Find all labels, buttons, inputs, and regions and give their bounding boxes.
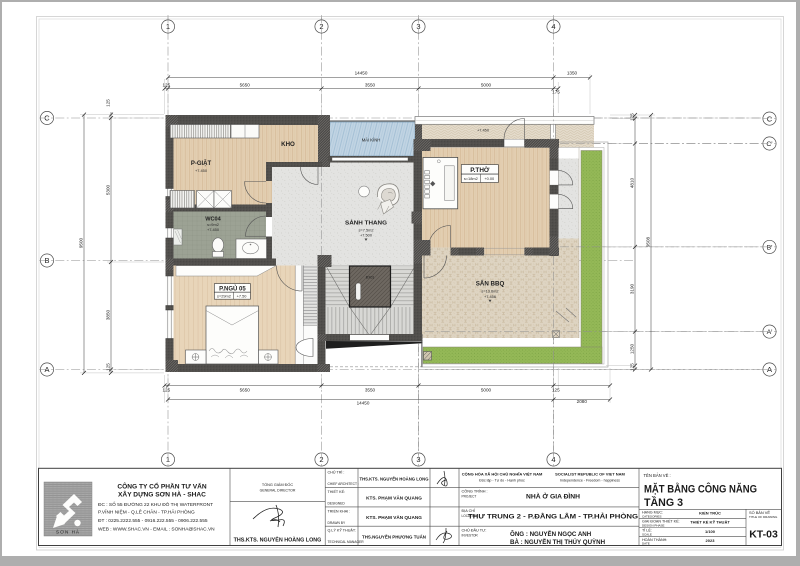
svg-text:TECHNICAL MANAGER: TECHNICAL MANAGER xyxy=(328,540,365,544)
svg-text:CHỦ TRÌ :: CHỦ TRÌ : xyxy=(328,470,345,475)
svg-text:3550: 3550 xyxy=(365,83,376,88)
svg-text:5000: 5000 xyxy=(481,388,492,393)
svg-text:2080: 2080 xyxy=(577,399,588,404)
svg-text:14450: 14450 xyxy=(355,71,368,76)
svg-text:DESIGN PHASE: DESIGN PHASE xyxy=(642,524,665,528)
svg-text:125: 125 xyxy=(106,363,111,371)
svg-text:DATE: DATE xyxy=(642,542,650,546)
svg-text:KTS. PHẠM VĂN QUANG: KTS. PHẠM VĂN QUANG xyxy=(366,495,422,501)
svg-text:+0.00: +0.00 xyxy=(484,176,495,181)
svg-text:DESIGNED: DESIGNED xyxy=(328,502,346,506)
svg-text:THƯ TRUNG 2 - P.ĐẰNG LÂM - TP.: THƯ TRUNG 2 - P.ĐẰNG LÂM - TP.HẢI PHÒNG xyxy=(468,512,638,521)
svg-text:5650: 5650 xyxy=(240,388,251,393)
svg-text:DRAWN BY: DRAWN BY xyxy=(328,521,346,525)
svg-text:A': A' xyxy=(767,329,773,336)
svg-text:THIẾT KẾ KỸ THUẬT: THIẾT KẾ KỸ THUẬT xyxy=(690,520,730,525)
svg-text:3190: 3190 xyxy=(630,283,635,294)
svg-text:1250: 1250 xyxy=(630,343,635,354)
svg-text:ĐC : SỐ 55 ĐƯỜNG 22 KHU ĐÔ THỊ: ĐC : SỐ 55 ĐƯỜNG 22 KHU ĐÔ THỊ WATERFRON… xyxy=(98,501,213,508)
svg-text:s=13.6m2: s=13.6m2 xyxy=(481,289,498,294)
svg-text:9508: 9508 xyxy=(646,236,651,247)
svg-text:SẢNH THANG: SẢNH THANG xyxy=(345,220,387,227)
svg-text:TÊN BẢN VẼ :: TÊN BẢN VẼ : xyxy=(644,473,671,478)
svg-text:SƠN HÀ: SƠN HÀ xyxy=(56,529,80,535)
svg-text:+7.456: +7.456 xyxy=(484,294,496,299)
svg-text:THS.NGUYỄN PHƯƠNG TUẤN: THS.NGUYỄN PHƯƠNG TUẤN xyxy=(362,533,427,539)
svg-text:14450: 14450 xyxy=(357,401,370,406)
svg-text:KT-03: KT-03 xyxy=(749,529,778,541)
svg-text:Q.LÝ KỸ THUẬT:: Q.LÝ KỸ THUẬT: xyxy=(328,528,356,533)
svg-text:XÂY DỰNG SƠN HÀ - SHAC: XÂY DỰNG SƠN HÀ - SHAC xyxy=(118,490,206,499)
svg-text:5650: 5650 xyxy=(240,83,251,88)
svg-text:175: 175 xyxy=(552,90,560,95)
svg-text:KTS. PHẠM VĂN QUANG: KTS. PHẠM VĂN QUANG xyxy=(366,514,422,520)
svg-text:C': C' xyxy=(766,141,772,148)
svg-text:B': B' xyxy=(767,244,773,251)
svg-text:CÔNG TRÌNH :: CÔNG TRÌNH : xyxy=(462,489,488,494)
svg-text:s=29m2: s=29m2 xyxy=(217,293,231,298)
svg-text:SÂN BBQ: SÂN BBQ xyxy=(476,281,505,288)
svg-text:ĐỊA CHỈ: ĐỊA CHỈ xyxy=(462,508,476,513)
svg-text:CỘNG HÒA XÃ HỘI CHỦ NGHĨA VIỆT: CỘNG HÒA XÃ HỘI CHỦ NGHĨA VIỆT NAM xyxy=(462,472,543,477)
svg-text:CATEGORIES: CATEGORIES xyxy=(642,514,661,518)
svg-text:CHIEF ARCHITECT :: CHIEF ARCHITECT : xyxy=(328,482,359,486)
svg-text:+7.450: +7.450 xyxy=(477,128,490,133)
svg-text:s=18m2: s=18m2 xyxy=(464,176,478,181)
svg-text:Độc lập - Tự do - Hạnh phúc: Độc lập - Tự do - Hạnh phúc xyxy=(479,479,525,483)
svg-text:THIẾT KẾ:: THIẾT KẾ: xyxy=(328,489,346,494)
svg-text:+7.50: +7.50 xyxy=(237,293,248,298)
svg-text:9500: 9500 xyxy=(79,237,84,248)
svg-text:1/100: 1/100 xyxy=(705,529,716,534)
svg-text:2023: 2023 xyxy=(706,538,716,543)
svg-text:Independence - Freedom - happi: Independence - Freedom - happiness xyxy=(560,479,620,483)
svg-text:BÀ : NGUYỄN THỊ THÚY QUỲ: BÀ : NGUYỄN THỊ THÚY QUỲNH xyxy=(510,539,606,546)
svg-text:INVESTOR: INVESTOR xyxy=(462,534,479,538)
svg-text:+7.500: +7.500 xyxy=(360,233,373,238)
svg-text:THS.KTS. NGUYỄN HOÀNG LONG: THS.KTS. NGUYỄN HOÀNG LONG xyxy=(360,476,429,482)
svg-text:PROJECT: PROJECT xyxy=(462,495,477,499)
svg-text:TITLE OF DRAWING: TITLE OF DRAWING xyxy=(749,515,778,519)
svg-text:KIẾN TRÚC: KIẾN TRÚC xyxy=(699,511,721,516)
svg-text:+7.450: +7.450 xyxy=(207,227,220,232)
svg-text:KHO: KHO xyxy=(281,141,295,148)
svg-text:4810: 4810 xyxy=(630,177,635,188)
svg-text:125: 125 xyxy=(162,388,170,393)
svg-text:P.NGỦ 05: P.NGỦ 05 xyxy=(219,285,246,292)
svg-text:5000: 5000 xyxy=(481,83,492,88)
svg-text:3550: 3550 xyxy=(365,388,376,393)
svg-text:ĐX01: ĐX01 xyxy=(366,276,375,280)
svg-text:SOCIALIST REPUBLIC OF VIET NAM: SOCIALIST REPUBLIC OF VIET NAM xyxy=(555,472,625,477)
svg-text:MẶT BẰNG CÔNG NĂNG: MẶT BẰNG CÔNG NĂNG xyxy=(644,483,757,496)
svg-text:5300: 5300 xyxy=(106,184,111,195)
svg-text:TRIỂN KHAI :: TRIỂN KHAI : xyxy=(328,508,351,513)
svg-text:1350: 1350 xyxy=(567,71,578,76)
svg-text:THS.KTS. NGUYỄN HOÀNG LONG: THS.KTS. NGUYỄN HOÀNG LONG xyxy=(234,537,322,544)
svg-text:NHÀ Ở GIA ĐÌNH: NHÀ Ở GIA ĐÌNH xyxy=(526,492,580,501)
svg-text:+7.450: +7.450 xyxy=(195,168,208,173)
svg-text:125: 125 xyxy=(162,83,170,88)
svg-text:125: 125 xyxy=(106,99,111,107)
svg-text:125: 125 xyxy=(552,388,560,393)
svg-text:GENERAL DIRECTOR: GENERAL DIRECTOR xyxy=(260,489,296,493)
svg-text:ÔNG : NGUYỄN NGỌC ANH: ÔNG : NGUYỄN NGỌC ANH xyxy=(510,530,592,538)
svg-text:TẦNG 3: TẦNG 3 xyxy=(644,496,683,509)
svg-text:125: 125 xyxy=(630,363,635,371)
svg-text:3850: 3850 xyxy=(106,309,111,320)
svg-text:P.THỜ: P.THỜ xyxy=(470,165,490,174)
svg-text:WEB : WWW.SHAC.VN - EMAIL : SO: WEB : WWW.SHAC.VN - EMAIL : SONHA@SHAC.V… xyxy=(98,527,215,533)
svg-text:ĐT : 0225.2222.555 - 0916.222.: ĐT : 0225.2222.555 - 0916.222.555 - 0906… xyxy=(98,518,208,524)
svg-text:SCALE: SCALE xyxy=(642,533,652,537)
svg-text:MÁI KÍNH: MÁI KÍNH xyxy=(362,138,381,143)
svg-text:125: 125 xyxy=(630,113,635,121)
svg-text:TỔNG GIÁM ĐỐC: TỔNG GIÁM ĐỐC xyxy=(262,482,293,487)
svg-text:CHỦ ĐẦU TƯ:: CHỦ ĐẦU TƯ: xyxy=(462,528,487,533)
svg-text:P-GIẶT: P-GIẶT xyxy=(191,160,212,167)
